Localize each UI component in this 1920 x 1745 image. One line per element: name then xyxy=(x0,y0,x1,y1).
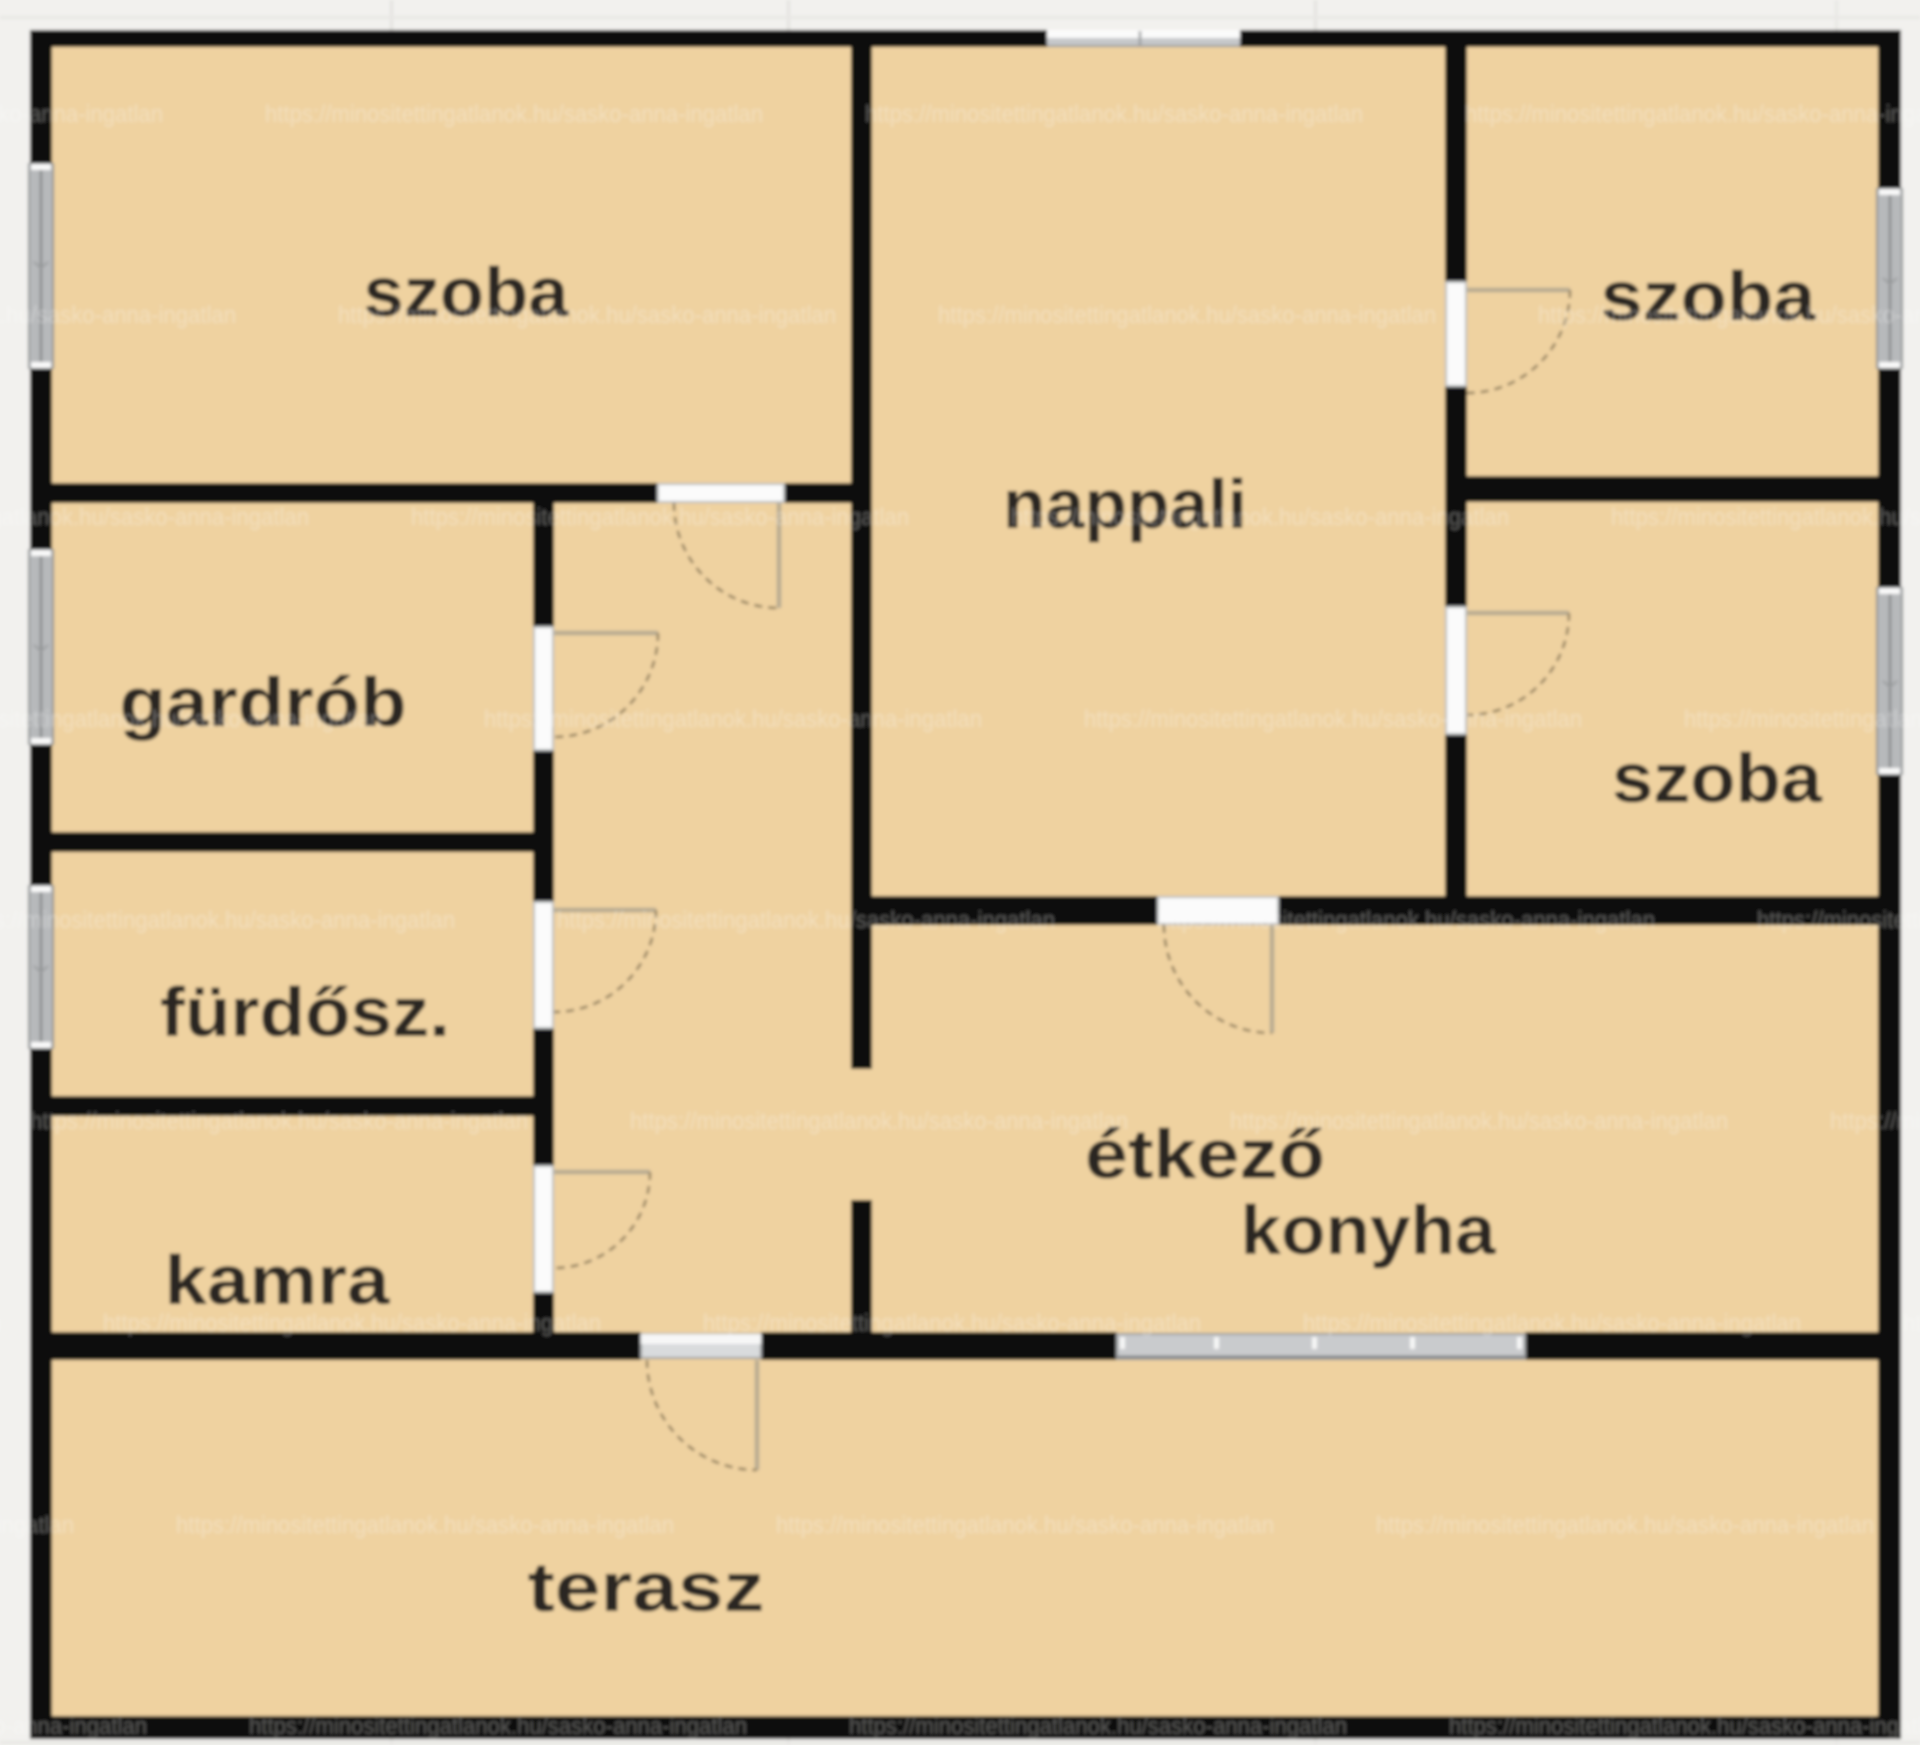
svg-text:https://minositettingatlanok.h: https://minositettingatlanok.hu/sasko-an… xyxy=(1611,504,1920,531)
svg-text:terasz: terasz xyxy=(528,1548,765,1626)
svg-text:https://minositettingatlanok.h: https://minositettingatlanok.hu/sasko-an… xyxy=(1465,101,1920,128)
svg-text:https://minositettingatlanok.h: https://minositettingatlanok.hu/sasko-an… xyxy=(30,1108,528,1135)
svg-text:https://minositettingatlanok.h: https://minositettingatlanok.hu/sasko-an… xyxy=(0,706,382,733)
svg-text:https://minositettingatlanok.h: https://minositettingatlanok.hu/sasko-an… xyxy=(484,706,982,733)
svg-text:https://minositettingatlanok.h: https://minositettingatlanok.hu/sasko-an… xyxy=(1084,706,1582,733)
svg-text:szoba: szoba xyxy=(1612,739,1823,817)
svg-text:fürdősz.: fürdősz. xyxy=(160,973,450,1051)
svg-text:https://minositettingatlanok.h: https://minositettingatlanok.hu/sasko-an… xyxy=(938,302,1436,329)
svg-text:https://minositettingatlanok.h: https://minositettingatlanok.hu/sasko-an… xyxy=(265,101,763,128)
svg-text:https://minositettingatlanok.h: https://minositettingatlanok.hu/sasko-an… xyxy=(0,907,455,934)
svg-text:https://minositettingatlanok.h: https://minositettingatlanok.hu/sasko-an… xyxy=(1903,1310,1920,1337)
svg-text:https://minositettingatlanok.h: https://minositettingatlanok.hu/sasko-an… xyxy=(338,302,836,329)
svg-text:https://minositettingatlanok.h: https://minositettingatlanok.hu/sasko-an… xyxy=(0,1713,147,1740)
svg-text:kamra: kamra xyxy=(165,1241,391,1319)
svg-text:https://minositettingatlanok.h: https://minositettingatlanok.hu/sasko-an… xyxy=(703,1310,1201,1337)
svg-text:https://minositettingatlanok.h: https://minositettingatlanok.hu/sasko-an… xyxy=(557,907,1055,934)
svg-text:https://minositettingatlanok.h: https://minositettingatlanok.hu/sasko-an… xyxy=(1538,302,1920,329)
svg-text:https://minositettingatlanok.h: https://minositettingatlanok.hu/sasko-an… xyxy=(1011,504,1509,531)
svg-text:https://minositettingatlanok.h: https://minositettingatlanok.hu/sasko-an… xyxy=(0,302,236,329)
svg-text:https://minositettingatlanok.h: https://minositettingatlanok.hu/sasko-an… xyxy=(249,1713,747,1740)
svg-text:https://minositettingatlanok.h: https://minositettingatlanok.hu/sasko-an… xyxy=(1157,907,1655,934)
svg-text:https://minositettingatlanok.h: https://minositettingatlanok.hu/sasko-an… xyxy=(1757,907,1920,934)
svg-text:https://minositettingatlanok.h: https://minositettingatlanok.hu/sasko-an… xyxy=(1684,706,1920,733)
svg-text:https://minositettingatlanok.h: https://minositettingatlanok.hu/sasko-an… xyxy=(1303,1310,1801,1337)
svg-text:https://minositettingatlanok.h: https://minositettingatlanok.hu/sasko-an… xyxy=(411,504,909,531)
svg-text:https://minositettingatlanok.h: https://minositettingatlanok.hu/sasko-an… xyxy=(0,1512,74,1539)
svg-text:https://minositettingatlanok.h: https://minositettingatlanok.hu/sasko-an… xyxy=(1230,1108,1728,1135)
svg-text:https://minositettingatlanok.h: https://minositettingatlanok.hu/sasko-an… xyxy=(1449,1713,1920,1740)
svg-text:https://minositettingatlanok.h: https://minositettingatlanok.hu/sasko-an… xyxy=(103,1310,601,1337)
svg-text:konyha: konyha xyxy=(1241,1191,1497,1269)
svg-text:https://minositettingatlanok.h: https://minositettingatlanok.hu/sasko-an… xyxy=(776,1512,1274,1539)
svg-text:https://minositettingatlanok.h: https://minositettingatlanok.hu/sasko-an… xyxy=(1830,1108,1920,1135)
svg-text:https://minositettingatlanok.h: https://minositettingatlanok.hu/sasko-an… xyxy=(0,504,309,531)
svg-text:https://minositettingatlanok.h: https://minositettingatlanok.hu/sasko-an… xyxy=(0,101,163,128)
svg-text:https://minositettingatlanok.h: https://minositettingatlanok.hu/sasko-an… xyxy=(0,1310,1,1337)
svg-text:https://minositettingatlanok.h: https://minositettingatlanok.hu/sasko-an… xyxy=(176,1512,674,1539)
svg-text:https://minositettingatlanok.h: https://minositettingatlanok.hu/sasko-an… xyxy=(630,1108,1128,1135)
svg-text:https://minositettingatlanok.h: https://minositettingatlanok.hu/sasko-an… xyxy=(1376,1512,1874,1539)
svg-text:https://minositettingatlanok.h: https://minositettingatlanok.hu/sasko-an… xyxy=(865,101,1363,128)
svg-text:https://minositettingatlanok.h: https://minositettingatlanok.hu/sasko-an… xyxy=(849,1713,1347,1740)
